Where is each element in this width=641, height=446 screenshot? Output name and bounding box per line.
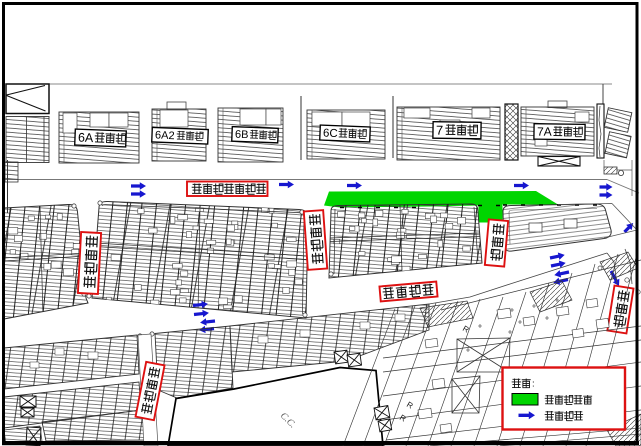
svg-text:7A: 7A — [537, 125, 552, 139]
svg-text:6C: 6C — [323, 128, 338, 141]
svg-text:6A2: 6A2 — [155, 129, 175, 142]
svg-text:6B: 6B — [235, 129, 249, 142]
svg-text:6A: 6A — [78, 131, 94, 146]
svg-text:7: 7 — [436, 123, 443, 138]
svg-text::: : — [532, 379, 535, 390]
